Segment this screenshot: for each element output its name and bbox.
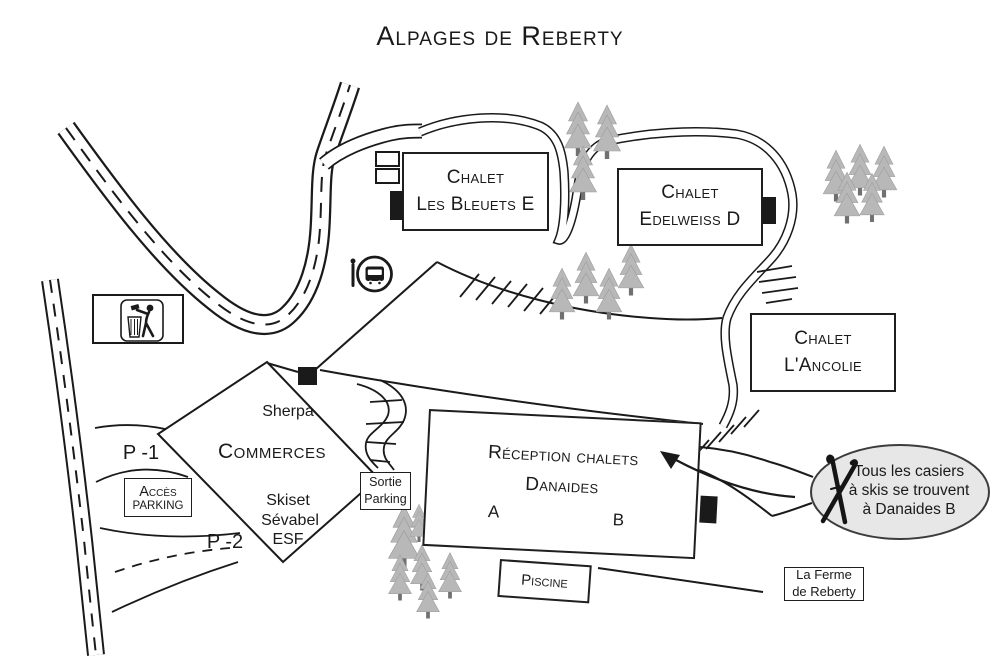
piscine-box: Piscine [497, 559, 591, 603]
ferme-line1: La Ferme [796, 567, 852, 584]
chalet-edelweiss-box: Chalet Edelweiss D [617, 168, 763, 246]
ski-note-line3: à Danaides B [848, 501, 970, 520]
chalet-ancolie-line2: L'Ancolie [784, 353, 862, 380]
reception-line2: Danaides [427, 469, 697, 504]
parking-entrance-line2: PARKING [133, 500, 184, 512]
parking-exit-line2: Parking [364, 491, 406, 508]
chalet-ancolie-line1: Chalet [794, 326, 851, 353]
main-road [66, 85, 350, 325]
map-title: Alpages de Reberty [320, 21, 680, 52]
chalet-les-bleuets-line1: Chalet [447, 165, 504, 192]
parking-access-road [50, 280, 96, 655]
chalet-les-bleuets-line2: Les Bleuets E [416, 192, 534, 219]
chalet-edelweiss-line1: Chalet [661, 180, 718, 207]
parking-entrance-box: Accès PARKING [124, 478, 192, 517]
ski-note-line2: à skis se trouvent [848, 482, 970, 501]
parking-level-1-label: P -1 [123, 442, 159, 465]
commerces-label: Commerces [218, 440, 326, 464]
chalet-les-bleuets-box: Chalet Les Bleuets E [402, 152, 549, 231]
ski-note-line1: Tous les casiers [848, 463, 970, 482]
parking-exit-box: Sortie Parking [360, 472, 411, 510]
bus-stop-icon [351, 257, 392, 291]
shop-esf-label: ESF [272, 531, 303, 549]
shop-sevabel-label: Sévabel [261, 512, 319, 530]
litter-icon [93, 295, 183, 343]
parking-exit-line1: Sortie [369, 474, 402, 491]
ferme-reberty-box: La Ferme de Reberty [784, 567, 864, 601]
shop-sherpa-label: Sherpa [262, 403, 314, 421]
reception-danaides-box: Réception chalets Danaides A B [422, 409, 701, 559]
parking-entrance-line1: Accès [139, 484, 176, 500]
reception-wing-a: A [488, 502, 500, 523]
ski-note-text: Tous les casiers à skis se trouvent à Da… [848, 463, 970, 520]
reception-line1: Réception chalets [428, 439, 698, 474]
shop-skiset-label: Skiset [266, 492, 310, 510]
stairs-path [357, 380, 406, 470]
resort-map: Alpages de Reberty Chalet Les Bleuets E … [0, 0, 1000, 657]
reception-wing-b: B [612, 510, 624, 531]
parking-level-2-label: P -2 [207, 531, 243, 554]
piscine-label: Piscine [521, 571, 569, 591]
chalet-ancolie-box: Chalet L'Ancolie [750, 313, 896, 392]
chalet-edelweiss-line2: Edelweiss D [639, 207, 740, 234]
ferme-line2: de Reberty [792, 584, 856, 601]
